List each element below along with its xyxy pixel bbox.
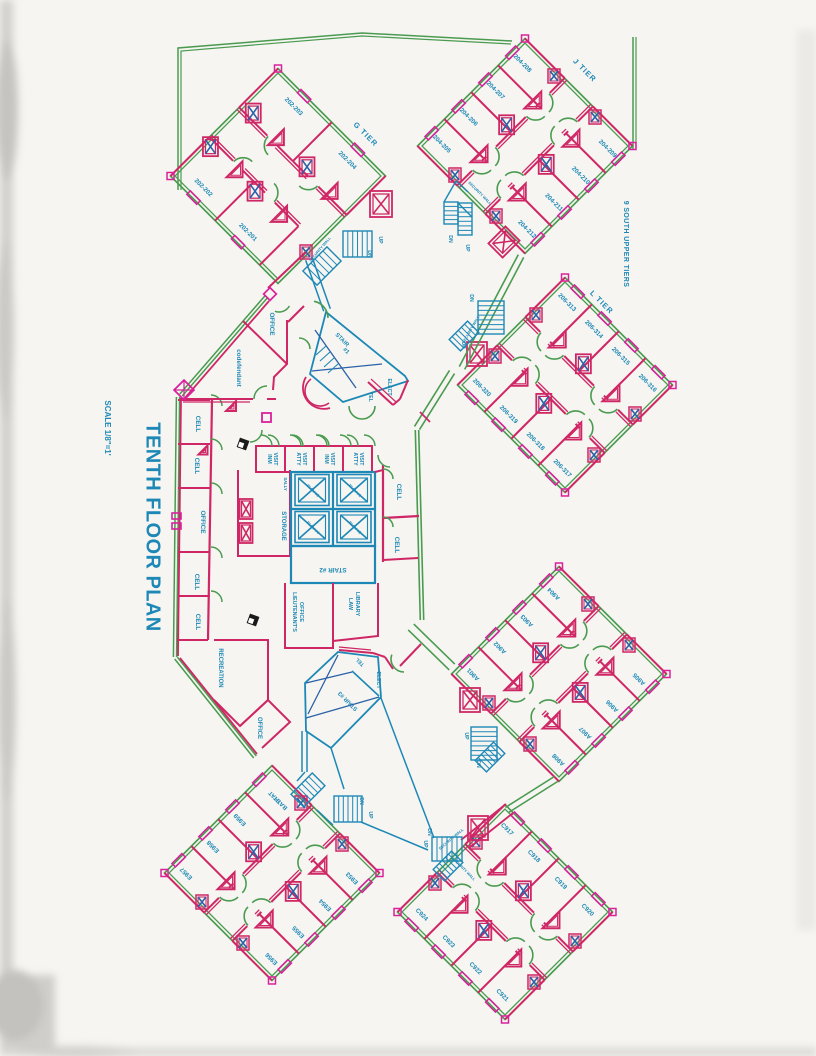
svg-text:SCALE 1/8"=1': SCALE 1/8"=1' [103, 400, 112, 455]
svg-text:STORAGE: STORAGE [280, 511, 286, 541]
svg-text:OFFICE: OFFICE [199, 510, 206, 533]
svg-text:VISIT: VISIT [272, 453, 278, 467]
svg-text:DN: DN [426, 828, 432, 836]
svg-text:UP: UP [422, 840, 428, 848]
svg-text:TENTH FLOOR PLAN: TENTH FLOOR PLAN [142, 422, 164, 631]
svg-text:UP: UP [463, 732, 469, 740]
svg-text:LIBRARY: LIBRARY [354, 592, 360, 617]
svg-text:DN: DN [468, 294, 474, 302]
svg-text:ELECT: ELECT [386, 378, 392, 396]
svg-text:UP: UP [464, 244, 470, 252]
svg-text:OFFICE: OFFICE [256, 717, 262, 739]
svg-text:UP: UP [377, 236, 383, 244]
svg-text:CELL: CELL [193, 574, 200, 591]
svg-text:VISIT: VISIT [358, 453, 364, 467]
svg-text:OFFICE: OFFICE [298, 602, 304, 622]
svg-text:CELL: CELL [194, 614, 201, 631]
svg-text:TEL: TEL [367, 392, 373, 403]
svg-text:INM: INM [323, 454, 329, 464]
svg-text:CELL: CELL [193, 458, 200, 475]
svg-text:RECREATION: RECREATION [217, 648, 223, 687]
svg-text:CELL: CELL [393, 537, 400, 554]
svg-text:DN: DN [358, 797, 364, 805]
svg-text:VISIT: VISIT [301, 453, 307, 467]
svg-text:CELL: CELL [395, 484, 402, 501]
svg-text:DN: DN [475, 760, 481, 768]
svg-text:VISIT: VISIT [329, 453, 335, 467]
svg-text:LIEUTENANT'S: LIEUTENANT'S [291, 592, 297, 632]
svg-text:DN: DN [447, 235, 453, 243]
svg-text:INM: INM [266, 454, 272, 464]
svg-text:SALLY: SALLY [283, 477, 288, 491]
svg-text:DN: DN [366, 250, 372, 258]
svg-text:ATTY: ATTY [295, 452, 301, 466]
svg-text:LAW: LAW [347, 598, 353, 611]
svg-text:codefendant: codefendant [235, 349, 242, 387]
svg-text:ELECT: ELECT [375, 671, 381, 689]
svg-text:OFFICE: OFFICE [268, 312, 275, 335]
svg-text:CELL: CELL [194, 416, 201, 433]
svg-text:UP: UP [367, 811, 373, 819]
svg-text:ATTY: ATTY [352, 452, 358, 466]
svg-text:9 SOUTH UPPER TIERS: 9 SOUTH UPPER TIERS [622, 201, 629, 288]
svg-text:STAIR #2: STAIR #2 [319, 566, 347, 573]
